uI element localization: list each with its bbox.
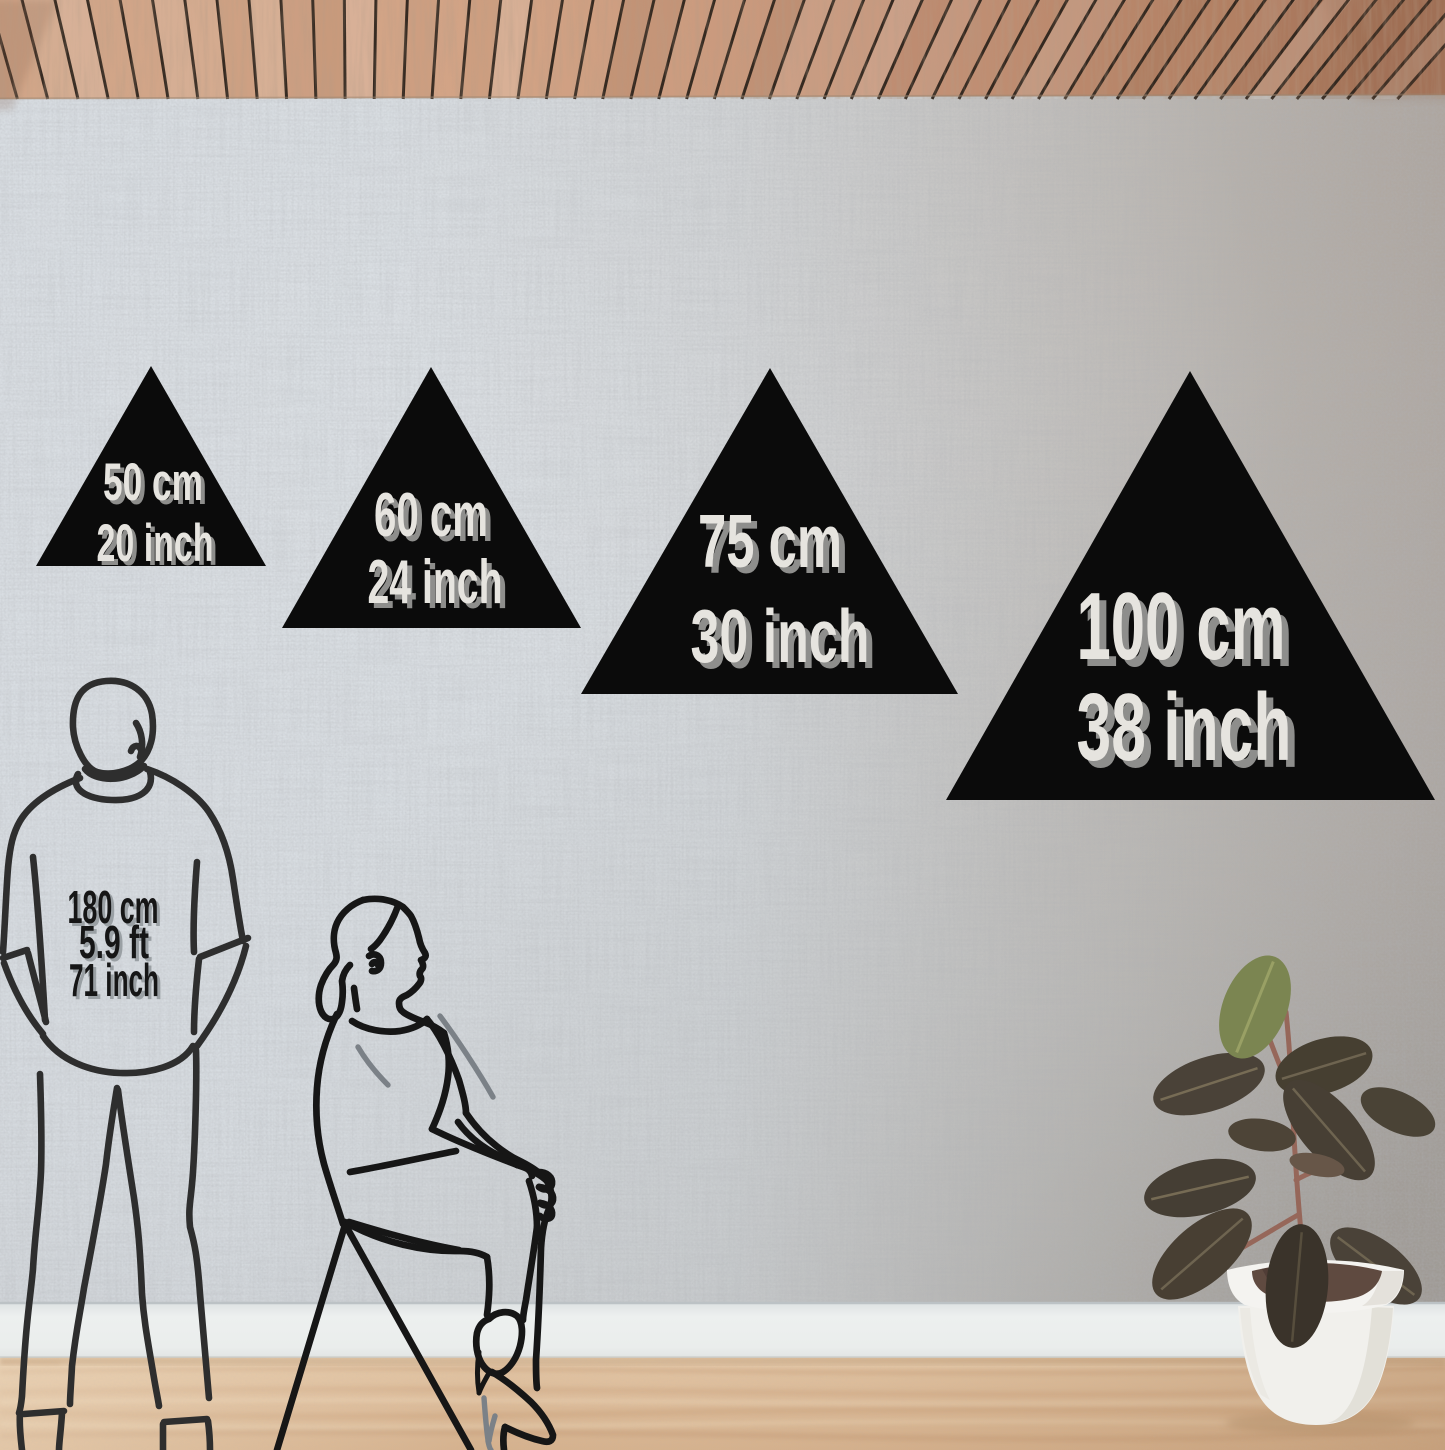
svg-text:71 inch: 71 inch [69,954,159,1006]
svg-text:50 cm: 50 cm [103,453,203,512]
svg-text:24 inch: 24 inch [368,548,503,617]
svg-text:30 inch: 30 inch [691,594,870,678]
svg-text:60 cm: 60 cm [374,481,488,550]
svg-text:100 cm: 100 cm [1077,573,1286,680]
svg-text:20 inch: 20 inch [97,514,214,573]
svg-text:75 cm: 75 cm [698,499,842,583]
svg-text:38 inch: 38 inch [1077,674,1292,781]
